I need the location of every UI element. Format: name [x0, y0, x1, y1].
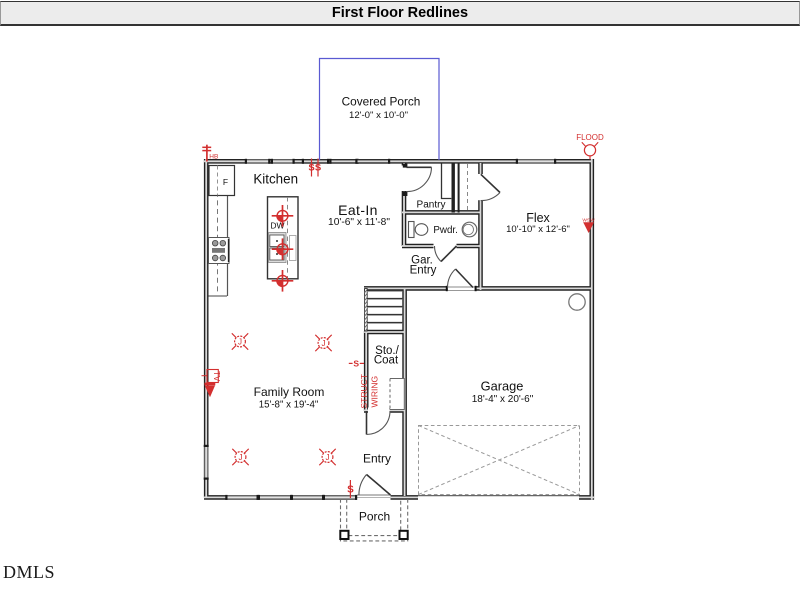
svg-text:F: F — [223, 177, 228, 187]
svg-text:J: J — [238, 338, 242, 347]
svg-text:TV: TV — [212, 371, 221, 382]
svg-text:Coat: Coat — [374, 355, 399, 367]
svg-text:15'-8" x 19'-4": 15'-8" x 19'-4" — [259, 400, 319, 411]
svg-text:S: S — [308, 163, 314, 174]
svg-text:J: J — [322, 339, 326, 348]
svg-text:S: S — [315, 163, 321, 174]
svg-text:J: J — [326, 453, 330, 462]
svg-text:Flex: Flex — [526, 211, 550, 225]
svg-text:FLOOD: FLOOD — [576, 133, 604, 142]
svg-text:18'-4" x 20'-6": 18'-4" x 20'-6" — [472, 394, 534, 405]
svg-text:WIRING: WIRING — [369, 376, 379, 408]
svg-text:10'-6" x 11'-8": 10'-6" x 11'-8" — [328, 217, 390, 228]
svg-text:Eat-In: Eat-In — [338, 202, 378, 218]
svg-text:S: S — [347, 485, 354, 496]
svg-text:S: S — [353, 359, 359, 369]
svg-text:Garage: Garage — [481, 379, 524, 394]
svg-text:STRUCT: STRUCT — [359, 374, 369, 408]
svg-text:Porch: Porch — [359, 510, 390, 524]
svg-text:Kitchen: Kitchen — [253, 171, 298, 186]
svg-text:HB: HB — [209, 154, 218, 161]
svg-text:Entry: Entry — [363, 452, 391, 466]
svg-text:Pantry: Pantry — [417, 200, 446, 211]
svg-text:Pwdr.: Pwdr. — [433, 225, 458, 236]
svg-text:J: J — [239, 453, 243, 462]
svg-text:12'-0" x 10'-0": 12'-0" x 10'-0" — [349, 110, 408, 121]
svg-text:Family Room: Family Room — [254, 385, 325, 399]
svg-text:10'-10" x 12'-6": 10'-10" x 12'-6" — [506, 224, 570, 235]
svg-text:Covered Porch: Covered Porch — [342, 95, 421, 109]
svg-text:Entry: Entry — [410, 265, 437, 277]
